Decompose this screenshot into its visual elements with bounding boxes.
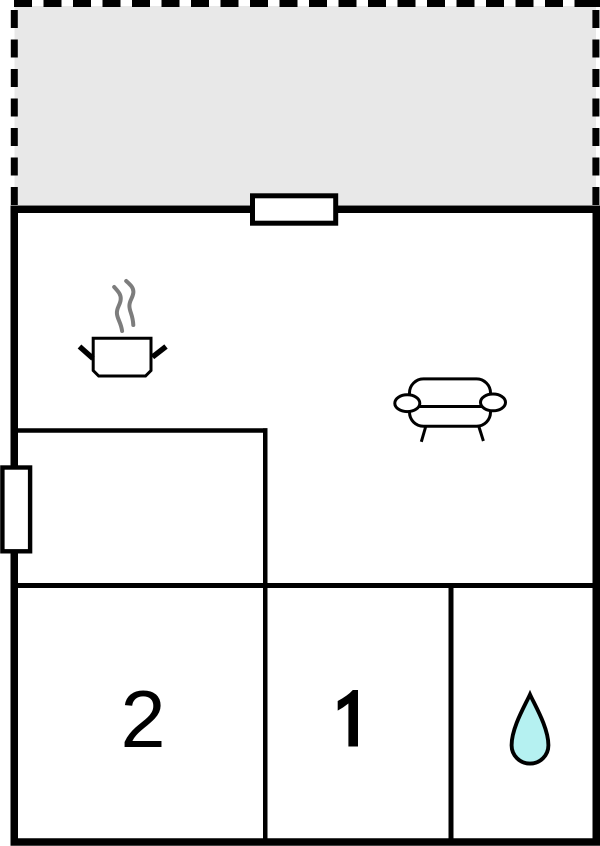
svg-text:2: 2 [120, 675, 165, 765]
